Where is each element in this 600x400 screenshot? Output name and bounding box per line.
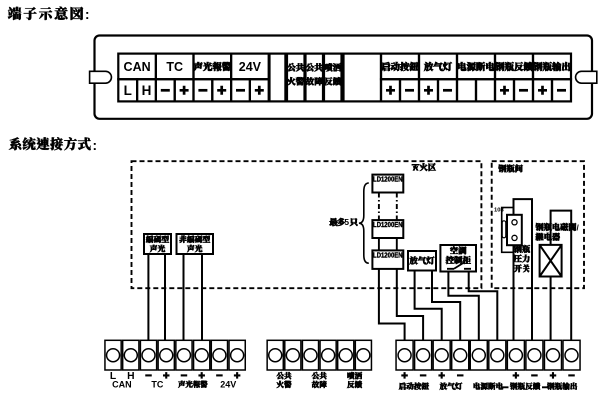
svg-text:LD1200EN: LD1200EN <box>373 175 403 184</box>
svg-text::: : <box>93 138 98 153</box>
svg-text:5: 5 <box>344 217 349 227</box>
svg-text::: : <box>85 7 90 22</box>
svg-text:H: H <box>142 83 152 98</box>
svg-text:LD1200EN: LD1200EN <box>373 220 403 229</box>
svg-text:CAN: CAN <box>124 60 151 74</box>
svg-text:L: L <box>124 83 132 98</box>
svg-text:TC: TC <box>151 379 163 389</box>
svg-text:108: 108 <box>494 208 504 214</box>
svg-text:LD1200EN: LD1200EN <box>373 251 403 260</box>
svg-text:24V: 24V <box>220 379 236 389</box>
svg-text:24V: 24V <box>239 60 262 74</box>
svg-text:TC: TC <box>166 60 183 74</box>
svg-text:CAN: CAN <box>112 379 132 389</box>
